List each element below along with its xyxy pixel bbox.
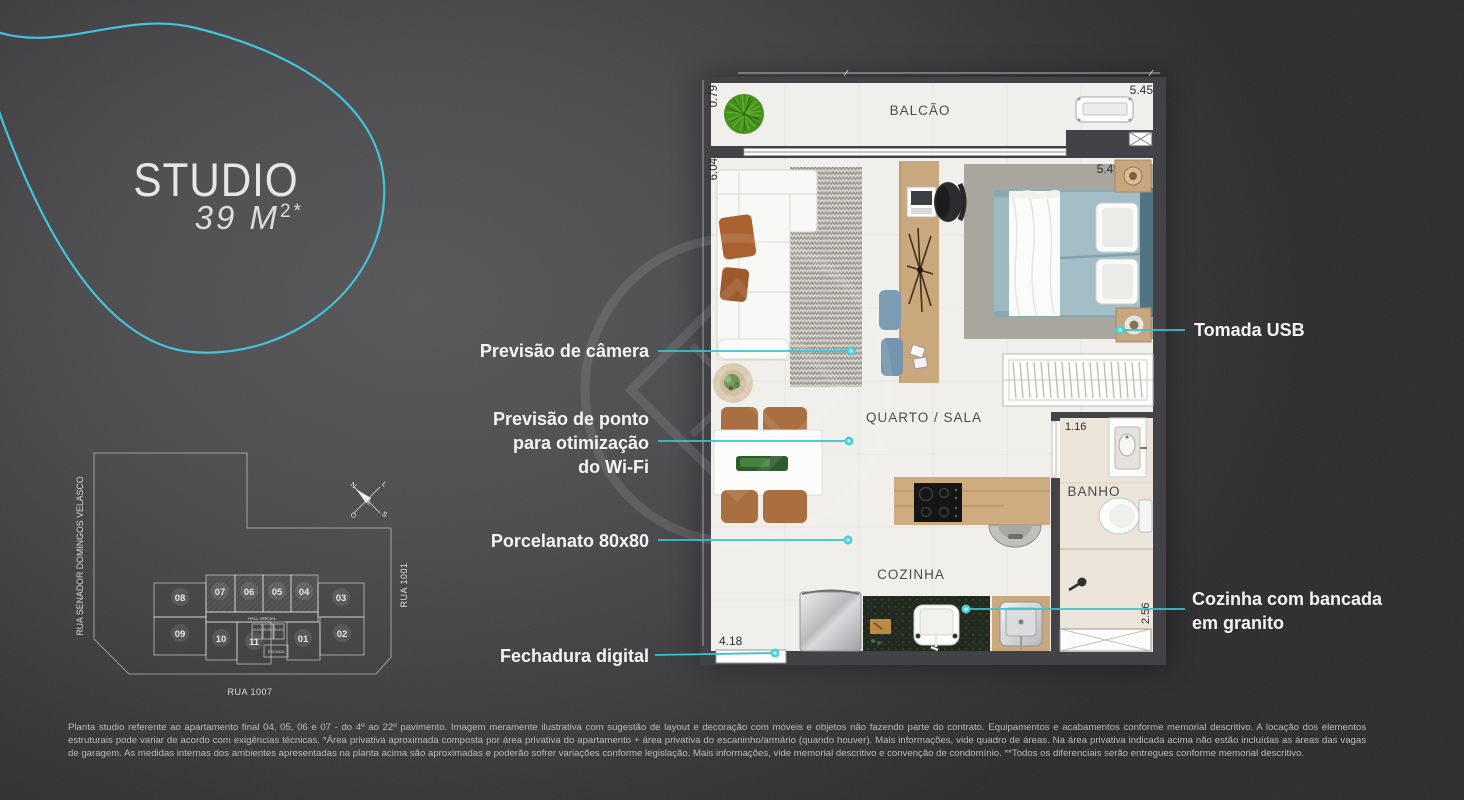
svg-text:11: 11 (249, 637, 260, 648)
svg-text:06: 06 (244, 587, 255, 598)
svg-text:07: 07 (215, 587, 226, 598)
svg-text:08: 08 (175, 593, 186, 604)
svg-text:05: 05 (272, 587, 283, 598)
svg-text:S: S (380, 511, 388, 520)
svg-text:01: 01 (298, 634, 309, 645)
svg-text:ELEV: ELEV (275, 628, 285, 632)
svg-text:10: 10 (216, 634, 227, 645)
svg-text:ELEV: ELEV (253, 628, 263, 632)
svg-text:O: O (349, 511, 358, 520)
svg-text:RUA SENADOR DOMINGOS VELASCO: RUA SENADOR DOMINGOS VELASCO (75, 476, 85, 636)
svg-text:09: 09 (175, 629, 186, 640)
svg-text:03: 03 (336, 593, 347, 604)
svg-text:04: 04 (299, 587, 310, 598)
svg-text:ELEV: ELEV (264, 628, 274, 632)
svg-text:RUA 1001: RUA 1001 (399, 562, 409, 607)
svg-text:02: 02 (337, 629, 348, 640)
svg-text:L: L (380, 481, 388, 489)
svg-text:RUA 1007: RUA 1007 (227, 687, 272, 697)
svg-text:ESCADA: ESCADA (268, 649, 285, 654)
svg-text:HALL SOCIAL: HALL SOCIAL (248, 616, 277, 621)
